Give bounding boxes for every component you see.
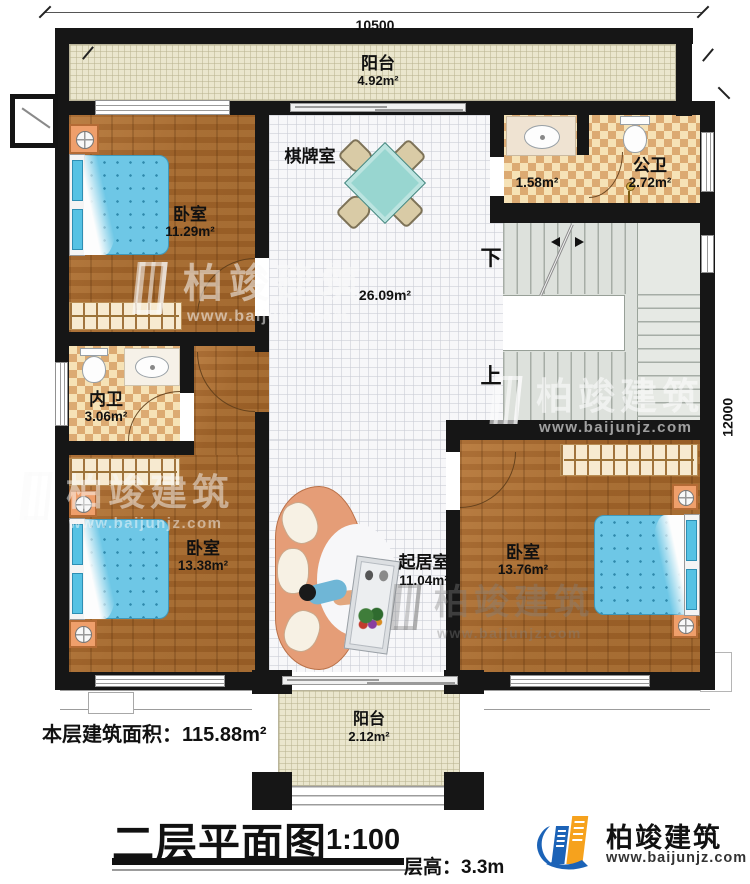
- room-area-bedroom-BR: 13.76m²: [485, 563, 561, 577]
- nightstand: [69, 620, 97, 648]
- room-area-balcony-top: 4.92m²: [343, 74, 413, 88]
- floor-plan: 柏竣建筑 www.baijunjz.com 柏竣建筑 www.baijunjz.…: [0, 0, 750, 884]
- room-label-private-bathroom: 内卫: [78, 391, 134, 409]
- watermark-url: www.baijunjz.com: [69, 515, 222, 532]
- room-label-balcony-bottom: 阳台: [334, 712, 404, 729]
- dimension-tick: [718, 87, 731, 100]
- pillar-bottom-left: [252, 772, 292, 810]
- window-publicbath-right: [701, 132, 714, 192]
- privatebath-sink-icon: [135, 356, 169, 378]
- room-label-living-room: 起居室: [384, 554, 464, 572]
- watermark-logo-icon: [19, 472, 52, 520]
- watermark-logo-icon: [390, 584, 422, 630]
- company-logo-icon: [536, 810, 598, 874]
- title-underline-thick: [112, 858, 404, 865]
- stair-flight-upper: [503, 223, 637, 294]
- floor-area-label: 本层建筑面积：: [42, 724, 182, 746]
- stair-arrow-left: [551, 237, 560, 247]
- nightstand: [69, 124, 99, 154]
- floor-area-line: 本层建筑面积：115.88m²: [42, 718, 267, 747]
- floor-height-label: 层高：: [404, 857, 461, 878]
- title-underline-thin: [112, 869, 414, 871]
- company-logo: 柏竣建筑 www.baijunjz.com: [536, 808, 742, 878]
- watermark-logo-icon: [132, 262, 167, 314]
- sliding-door-balcony-bottom: [282, 676, 458, 685]
- flowers-icon: [353, 601, 387, 635]
- dimension-top-value: 10500: [340, 18, 410, 33]
- room-area-washroom: 1.58m²: [506, 176, 568, 190]
- floor-height-value: 3.3m: [461, 857, 504, 878]
- bay-diagonal-line: [22, 107, 51, 128]
- wall-bath-bottom: [490, 203, 715, 223]
- window-bedroomBR-bottom: [510, 675, 650, 687]
- room-area-private-bathroom: 3.06m²: [76, 410, 136, 424]
- watermark: 柏竣建筑 www.baijunjz.com: [392, 580, 622, 644]
- room-label-bedroom-BR: 卧室: [493, 544, 553, 562]
- wall-washroom-left-a: [490, 115, 504, 157]
- window-bedroomTL-top: [95, 100, 230, 115]
- privatebath-toilet-icon: [80, 348, 108, 386]
- chess-table-set: [330, 136, 440, 236]
- watermark-url: www.baijunjz.com: [539, 419, 692, 436]
- stair-arrow-right: [575, 237, 584, 247]
- rail-bottom-right: [484, 690, 710, 710]
- window-stairs-right: [701, 235, 714, 273]
- dimension-right-value: 12000: [721, 379, 736, 455]
- wall-bath-partition: [577, 115, 589, 155]
- privatebath-counter: [124, 348, 180, 386]
- room-label-bedroom-TL: 卧室: [160, 206, 220, 224]
- publicbath-toilet-icon: [620, 116, 650, 156]
- plan-scale: 1:100: [326, 824, 400, 857]
- floor-height-line: 层高：3.3m: [404, 852, 504, 879]
- watermark-url: www.baijunjz.com: [187, 308, 349, 326]
- stairs-down-label: 下: [478, 248, 504, 270]
- room-label-balcony-top: 阳台: [343, 55, 413, 73]
- sliding-door-balcony-top: [290, 103, 466, 112]
- watermark: 柏竣建筑 www.baijunjz.com: [22, 468, 262, 534]
- watermark-brand: 柏竣建筑: [183, 264, 367, 304]
- room-label-bedroom-BL: 卧室: [173, 540, 233, 558]
- stairs-up-label: 上: [478, 366, 504, 388]
- wall-privatebath-bottom: [55, 441, 194, 455]
- exterior-porch-box: [88, 692, 134, 714]
- room-area-public-bathroom: 2.72m²: [618, 176, 682, 190]
- wall-hall-left-lower: [255, 412, 269, 672]
- wall-bedroomTL-bottom: [55, 332, 269, 346]
- watermark-brand: 柏竣建筑: [66, 474, 234, 511]
- dimension-line-top: [45, 12, 703, 13]
- room-area-living-room: 11.04m²: [387, 574, 461, 588]
- bed-top-left: [69, 154, 169, 256]
- watermark: 柏竣建筑 www.baijunjz.com: [492, 372, 732, 438]
- room-area-balcony-bottom: 2.12m²: [336, 730, 402, 744]
- pillar-bottom-right: [444, 772, 484, 810]
- room-area-hall: 26.09m²: [352, 288, 418, 303]
- stair-void: [503, 295, 625, 351]
- window-privatebath-left: [55, 362, 68, 426]
- room-area-bedroom-TL: 11.29m²: [152, 225, 228, 239]
- window-bedroomBL-bottom: [95, 675, 225, 687]
- nightstand: [672, 484, 698, 510]
- wall-bedroomBR-left-a: [446, 440, 460, 452]
- room-label-chess-room: 棋牌室: [280, 148, 340, 166]
- wardrobe-bottom-right: [560, 444, 698, 476]
- wall-privatebath-right: [180, 346, 194, 393]
- floor-area-value: 115.88m²: [182, 724, 267, 746]
- watermark-url: www.baijunjz.com: [437, 625, 582, 641]
- wall-washroom-left-b: [490, 196, 504, 203]
- room-label-public-bathroom: 公卫: [622, 157, 678, 175]
- watermark-brand: 柏竣建筑: [536, 378, 704, 415]
- dimension-tick: [702, 48, 714, 62]
- wall-bedroomTL-right-a: [255, 115, 269, 258]
- washroom-counter: [506, 116, 576, 156]
- watermark-brand: 柏竣建筑: [434, 585, 594, 620]
- logo-url: www.baijunjz.com: [606, 850, 747, 866]
- exterior-bay-box: [10, 94, 58, 148]
- hall-floor: [269, 223, 503, 440]
- washroom-sink-icon: [524, 125, 560, 149]
- room-area-bedroom-BL: 13.38m²: [165, 559, 241, 573]
